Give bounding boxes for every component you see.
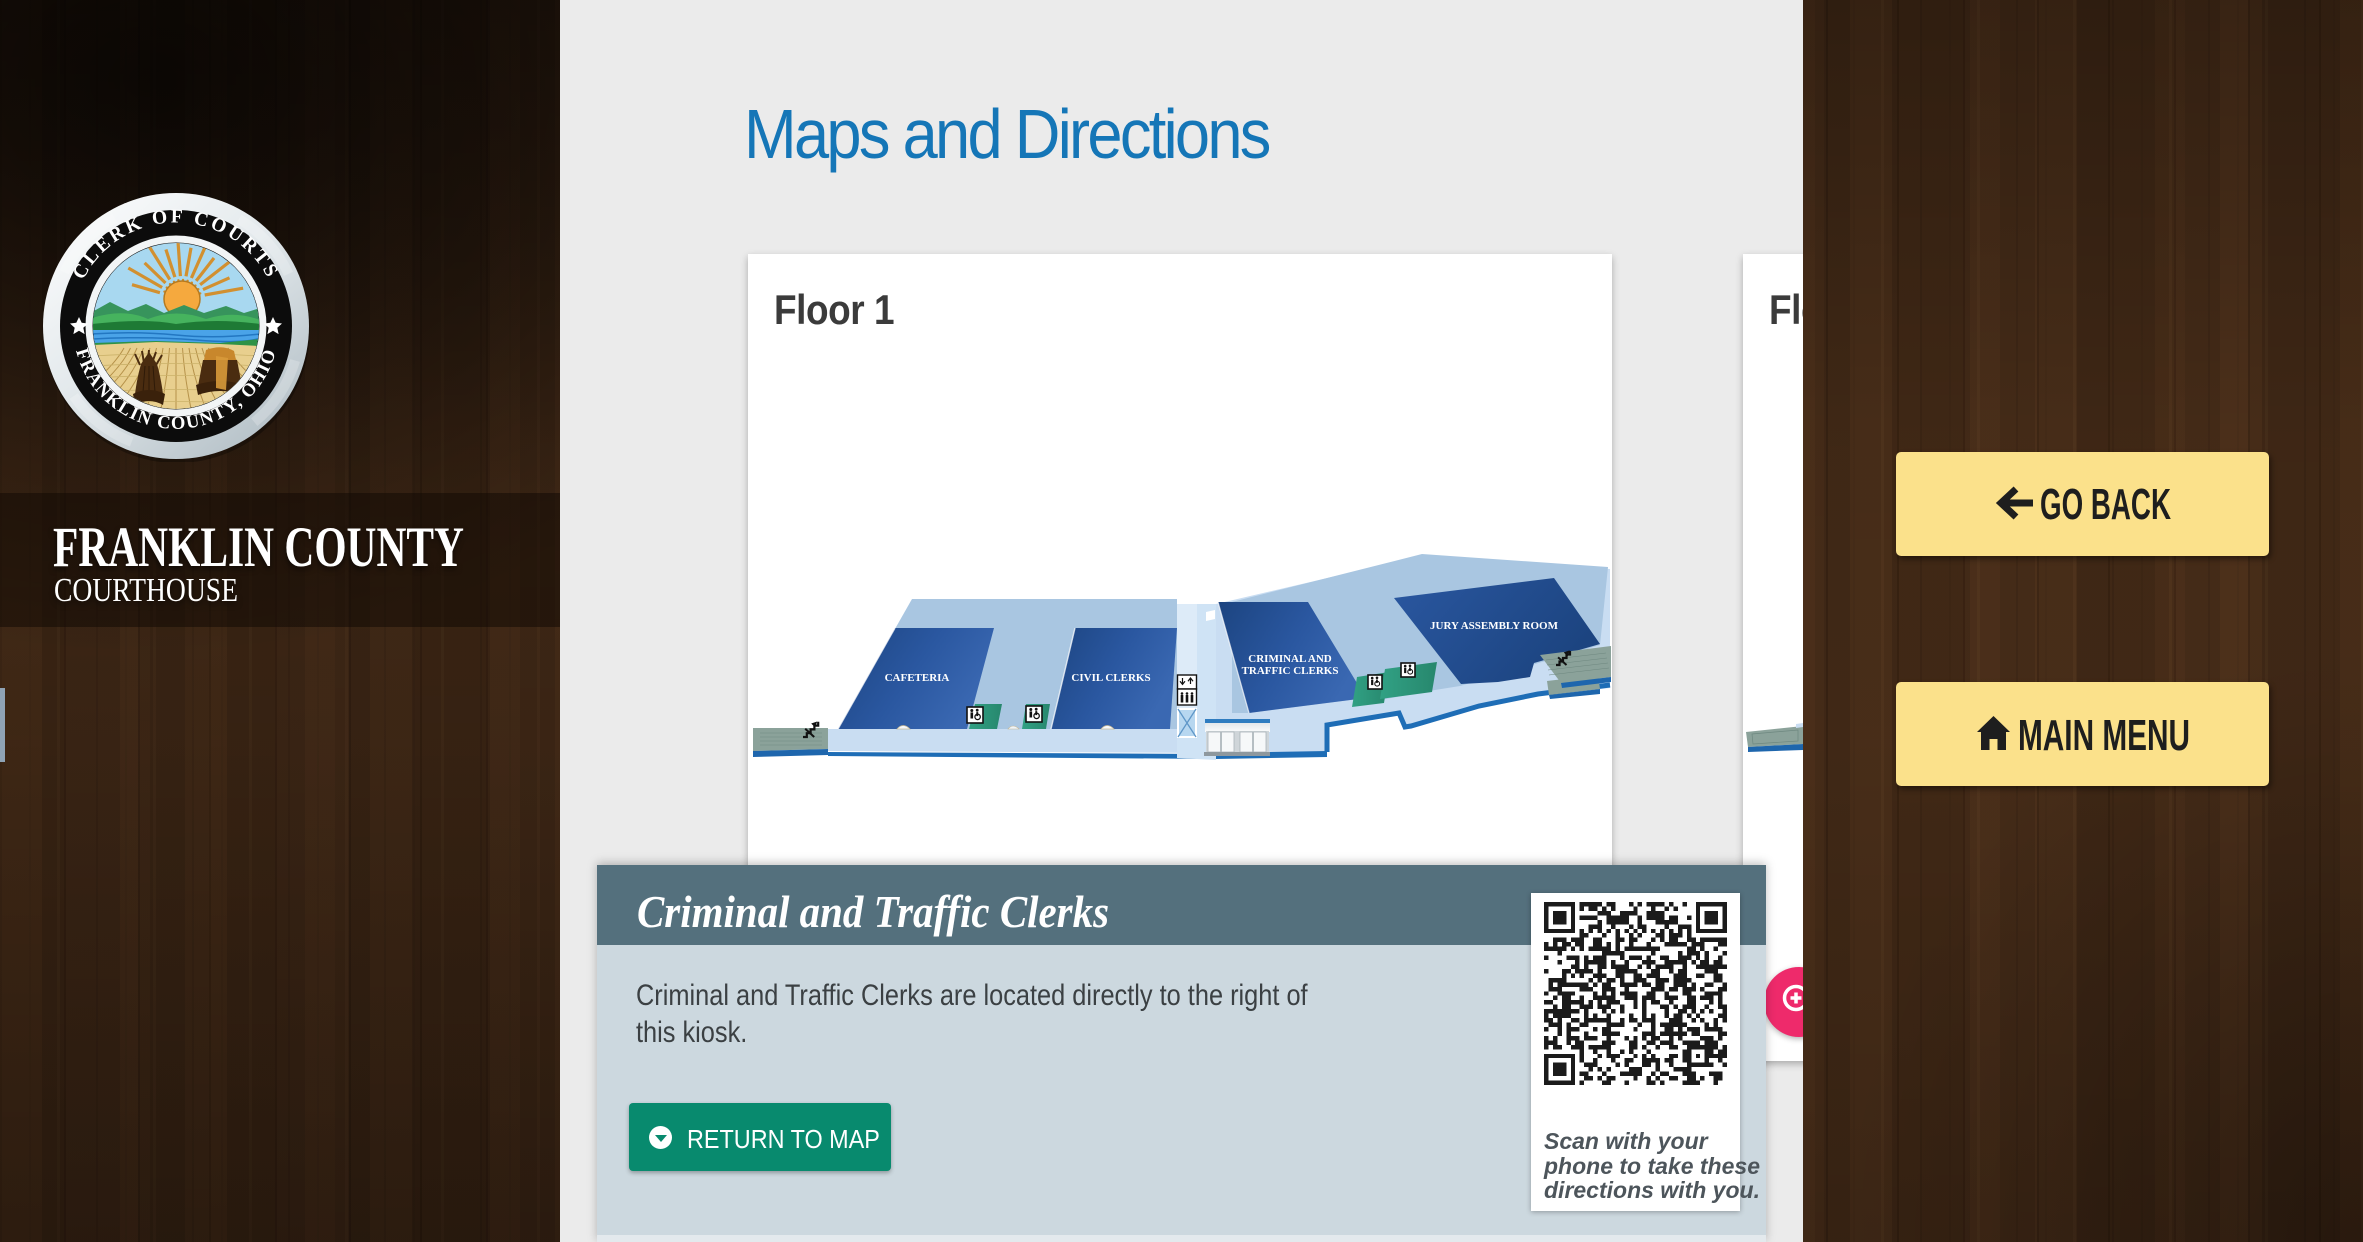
svg-text:CRIMINAL AND: CRIMINAL AND [1248, 653, 1331, 665]
svg-text:JURY ASSEMBLY ROOM: JURY ASSEMBLY ROOM [1430, 620, 1559, 632]
svg-text:COURTHOUSE: COURTHOUSE [54, 572, 238, 609]
svg-text:MAIN MENU: MAIN MENU [2018, 711, 2190, 760]
svg-text:TRAFFIC CLERKS: TRAFFIC CLERKS [1242, 665, 1339, 677]
svg-text:CAFETERIA: CAFETERIA [885, 672, 950, 684]
svg-text:GO BACK: GO BACK [2040, 480, 2171, 529]
svg-text:CIVIL CLERKS: CIVIL CLERKS [1071, 672, 1150, 684]
svg-text:FRANKLIN COUNTY: FRANKLIN COUNTY [53, 516, 464, 579]
